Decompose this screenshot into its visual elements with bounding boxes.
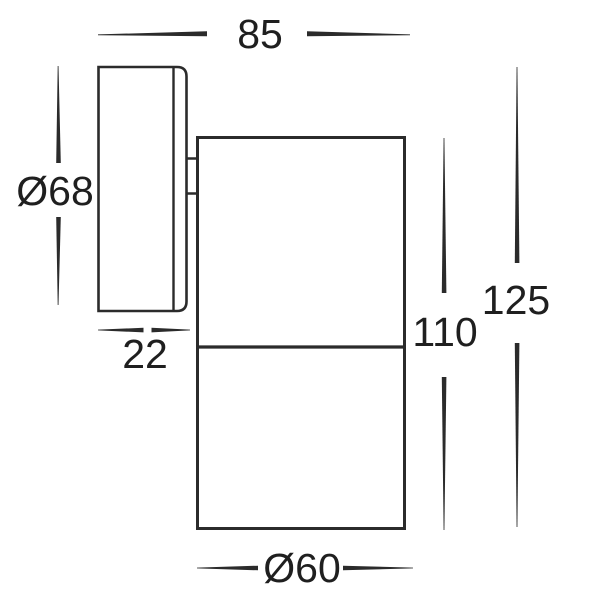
body-outline — [198, 138, 405, 529]
dim-125-arrow-top — [515, 67, 520, 263]
technical-drawing-canvas: 85 Ø68 22 110 125 Ø60 — [0, 0, 600, 600]
dim-label-body-diameter: Ø60 — [263, 545, 341, 591]
fixture-dimension-diagram: 85 Ø68 22 110 125 Ø60 — [0, 0, 600, 600]
dim-label-backplate-diameter: Ø68 — [16, 168, 94, 214]
dim-85-arrow-left — [98, 31, 207, 36]
dim-110-arrow-top — [442, 138, 447, 293]
dim-85-arrow-right — [307, 31, 410, 36]
dim-label-overall-projection: 85 — [237, 11, 283, 57]
dim-label-backplate-depth: 22 — [122, 331, 168, 377]
dim-60-arrow-left — [197, 566, 258, 571]
dim-60-arrow-right — [343, 566, 413, 571]
dim-label-overall-length: 125 — [482, 277, 550, 323]
dim-68-arrow-bottom — [56, 217, 61, 305]
dim-110-arrow-bottom — [442, 377, 447, 530]
dim-label-body-length: 110 — [412, 309, 477, 355]
dim-125-arrow-bottom — [515, 343, 520, 527]
dim-68-arrow-top — [56, 66, 61, 163]
